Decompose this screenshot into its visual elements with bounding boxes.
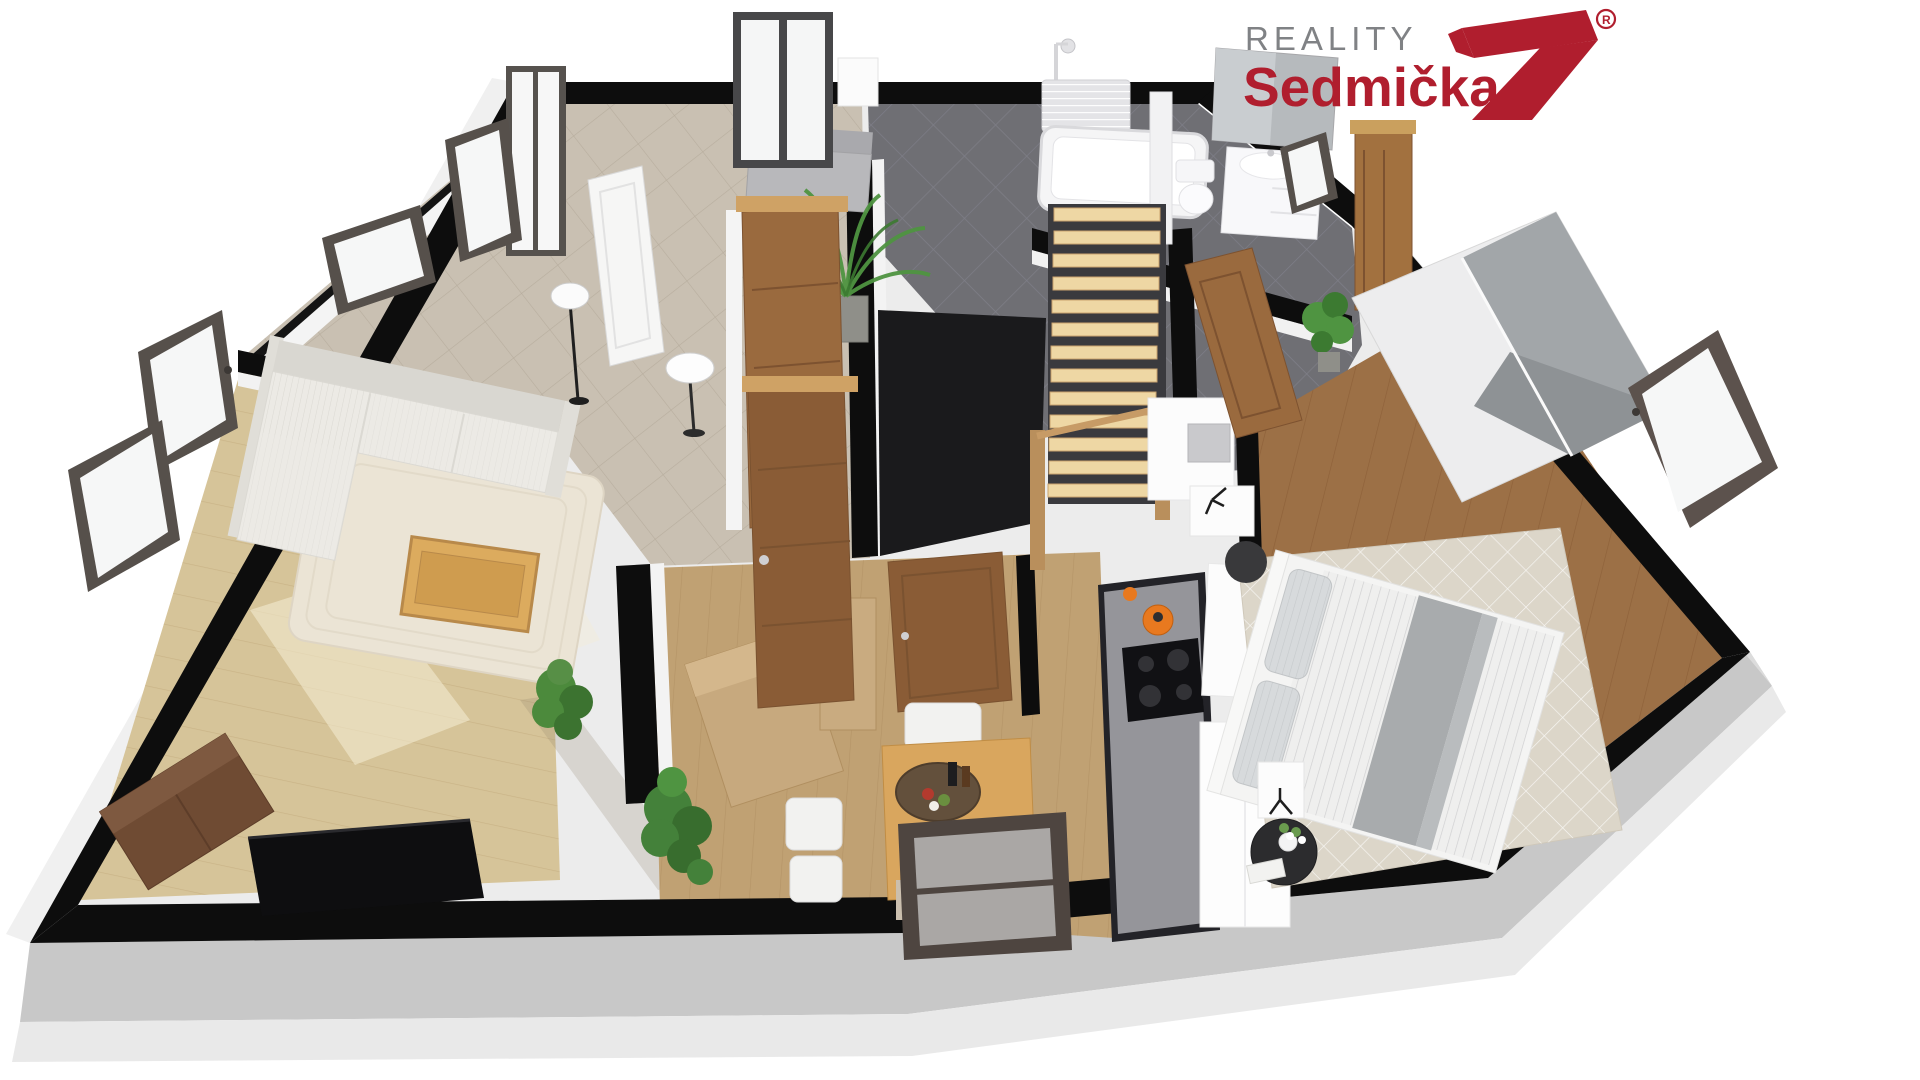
lamp-shade	[666, 353, 714, 383]
logo-line2: Sedmička	[1243, 56, 1500, 118]
kitchen-open-shelf	[1188, 424, 1230, 462]
shower-head	[1061, 39, 1075, 53]
gas-hob	[1122, 638, 1204, 722]
floor-plan-render: REALITY Sedmička R	[0, 0, 1920, 1080]
entry-door-glass	[741, 20, 779, 160]
window-handle	[224, 366, 232, 374]
towel-radiator-slats	[1042, 80, 1130, 132]
interior-door-lower	[742, 376, 858, 708]
entry-door-glass	[787, 20, 825, 160]
kettle	[1143, 605, 1173, 635]
window-handle	[1632, 408, 1640, 416]
dining-door	[888, 552, 1012, 712]
round-side-table	[1225, 541, 1267, 583]
serving-tray	[896, 762, 980, 821]
orange-pot	[1123, 587, 1137, 601]
front-window	[898, 812, 1072, 960]
door-handle	[759, 555, 769, 565]
logo-line1: REALITY	[1245, 20, 1418, 57]
bottle	[962, 766, 970, 787]
door-jamb-wall	[726, 210, 742, 530]
dining-chair	[790, 856, 842, 902]
door-top-cap	[736, 196, 848, 212]
toilet-bowl	[1179, 184, 1213, 214]
door-top-cap	[742, 376, 858, 392]
entry-double-door	[733, 12, 833, 168]
shoe-cabinet	[838, 58, 878, 106]
door-handle	[901, 632, 909, 640]
newel-post	[1030, 430, 1045, 570]
coffee-table	[401, 537, 539, 632]
kettle-lid	[1153, 612, 1163, 622]
svg-text:R: R	[1602, 13, 1611, 27]
floor-plan-screenshot: REALITY Sedmička R	[0, 0, 1920, 1080]
nightstand	[1190, 486, 1254, 536]
stairwell-void	[878, 310, 1046, 556]
door-top-cap	[1350, 120, 1416, 134]
dining-chair	[786, 798, 842, 850]
bathtub-basin	[1051, 136, 1196, 205]
lamp-base	[683, 429, 705, 437]
window-glass	[538, 72, 559, 250]
bottle	[948, 762, 957, 786]
toilet-tank	[1176, 160, 1214, 182]
